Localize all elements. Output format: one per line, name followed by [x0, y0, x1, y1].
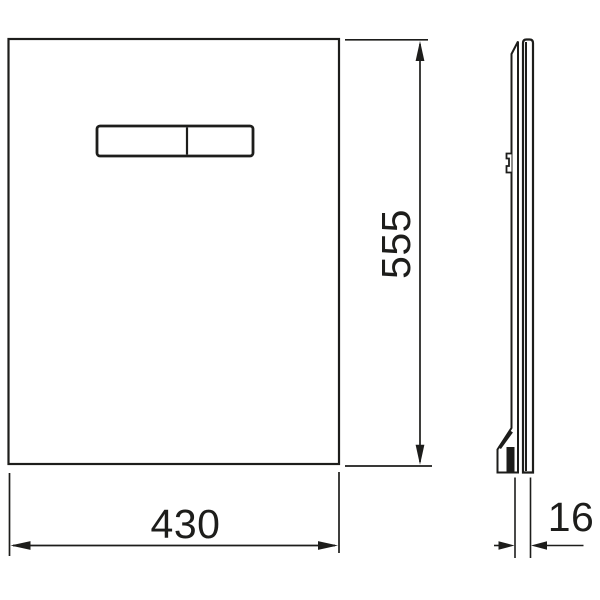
side-glass-panel	[523, 40, 533, 473]
technical-drawing: 430 555 16	[0, 0, 600, 600]
side-mounting-clip	[507, 154, 512, 173]
dim-width-arrow-right	[318, 541, 338, 550]
plate-outline	[9, 39, 340, 464]
side-view	[498, 40, 534, 473]
dim-depth-arrow-right-pointing	[499, 541, 515, 550]
dim-height-arrow-up	[416, 41, 425, 61]
dim-depth-label: 16	[531, 497, 600, 537]
drawing-canvas	[0, 0, 600, 600]
flush-button-panel	[97, 126, 253, 156]
dim-width-arrow-left	[11, 541, 31, 550]
dim-height-label: 555	[376, 209, 416, 279]
dim-width-label: 430	[126, 504, 246, 544]
front-view	[9, 39, 340, 464]
side-foot-hook	[507, 447, 515, 472]
side-carrier-profile	[498, 42, 519, 473]
dim-height-arrow-down	[416, 445, 425, 465]
dim-depth-arrow-left-pointing	[531, 541, 547, 550]
